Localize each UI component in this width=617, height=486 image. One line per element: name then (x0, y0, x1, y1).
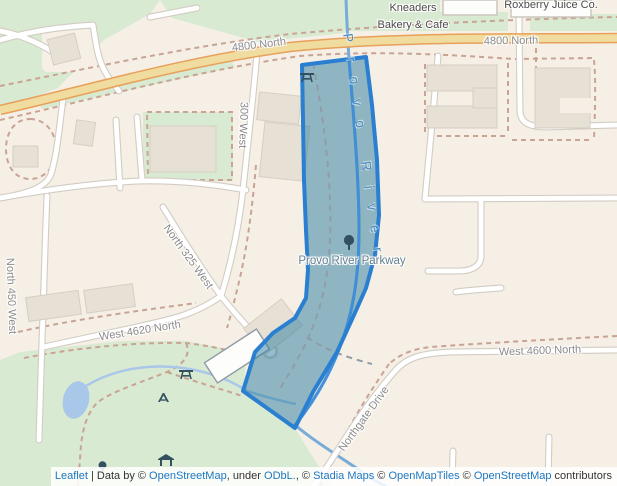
copyright-symbol-2: , © (296, 470, 313, 482)
attribution-contributors: contributors (551, 470, 612, 482)
map-canvas[interactable]: Kneaders Bakery & Cafe Roxberry Juice Co… (0, 0, 617, 486)
leaflet-link[interactable]: Leaflet (55, 470, 88, 482)
basemap-tiles (0, 0, 617, 486)
attribution-separator: | (88, 470, 97, 482)
openstreetmap-link[interactable]: OpenStreetMap (149, 470, 227, 482)
stadia-maps-link[interactable]: Stadia Maps (313, 470, 374, 482)
attribution-data-by: Data by (97, 470, 138, 482)
copyright-symbol-3: © (374, 470, 388, 482)
openstreetmap-link-2[interactable]: OpenStreetMap (474, 470, 552, 482)
copyright-symbol-4: © (460, 470, 474, 482)
attribution-under: , under (227, 470, 264, 482)
openmaptiles-link[interactable]: OpenMapTiles (388, 470, 459, 482)
odbl-link[interactable]: ODbL. (264, 470, 296, 482)
copyright-symbol: © (138, 470, 149, 482)
attribution-bar: Leaflet | Data by © OpenStreetMap, under… (51, 467, 617, 486)
